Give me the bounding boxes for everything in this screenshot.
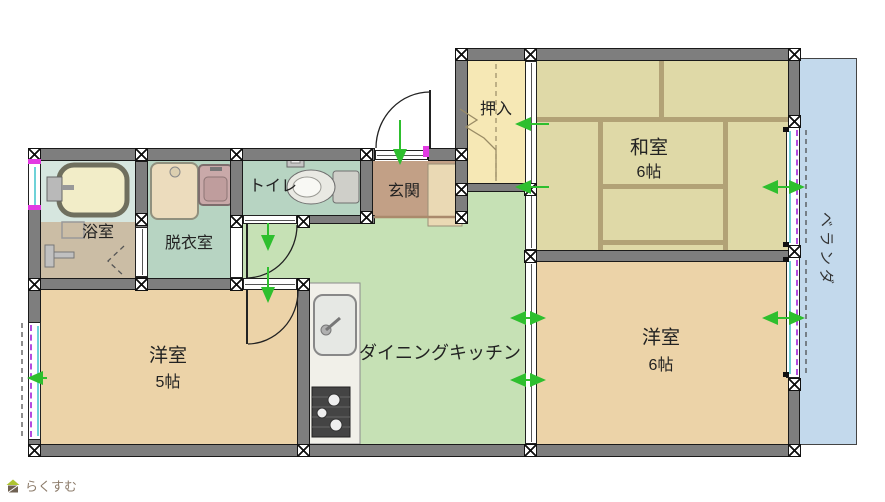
bath-label: 浴室 [82, 218, 114, 242]
dressing-room-label: 脱衣室 [165, 229, 213, 253]
pillar-marker [297, 215, 310, 228]
pillar-marker [28, 148, 41, 161]
pillars-layer [0, 0, 885, 502]
western-room-5-size: 5帖 [156, 368, 181, 392]
pillar-marker [788, 378, 801, 391]
pillar-marker [788, 444, 801, 457]
pillar-marker [455, 48, 468, 61]
rakusumu-logo: らくすむ [6, 476, 77, 495]
entrance-label: 玄関 [388, 177, 420, 201]
house-logo-icon [6, 479, 20, 493]
pillar-marker [28, 278, 41, 291]
pillar-marker [135, 148, 148, 161]
pillar-marker [455, 183, 468, 196]
pillar-marker [524, 250, 537, 263]
pillar-marker [524, 183, 537, 196]
pillar-marker [135, 278, 148, 291]
pillar-marker [455, 148, 468, 161]
pillar-marker [360, 211, 373, 224]
pillar-marker [524, 444, 537, 457]
japanese-room-label: 和室 [630, 133, 668, 160]
pillar-marker [230, 278, 243, 291]
toilet-label: トイレ [249, 172, 297, 196]
pillar-marker [28, 444, 41, 457]
pillar-marker [135, 213, 148, 226]
logo-text: らくすむ [25, 476, 77, 495]
western-room-6-size: 6帖 [649, 351, 674, 375]
japanese-room-size: 6帖 [637, 158, 662, 182]
pillar-marker [297, 444, 310, 457]
floor-plan-canvas: 浴室 脱衣室 トイレ 玄関 押入 和室 6帖 ダイニングキッチン 洋室 5帖 洋… [0, 0, 885, 502]
pillar-marker [230, 148, 243, 161]
pillar-marker [230, 215, 243, 228]
dining-kitchen-label: ダイニングキッチン [359, 339, 521, 365]
pillar-marker [360, 148, 373, 161]
western-room-5-label: 洋室 [149, 341, 187, 368]
pillar-marker [524, 48, 537, 61]
veranda-label: ベランダ [817, 212, 838, 288]
pillar-marker [788, 115, 801, 128]
pillar-marker [788, 48, 801, 61]
closet-label: 押入 [480, 95, 512, 119]
pillar-marker [788, 245, 801, 258]
western-room-6-label: 洋室 [642, 323, 680, 350]
pillar-marker [297, 278, 310, 291]
pillar-marker [455, 211, 468, 224]
